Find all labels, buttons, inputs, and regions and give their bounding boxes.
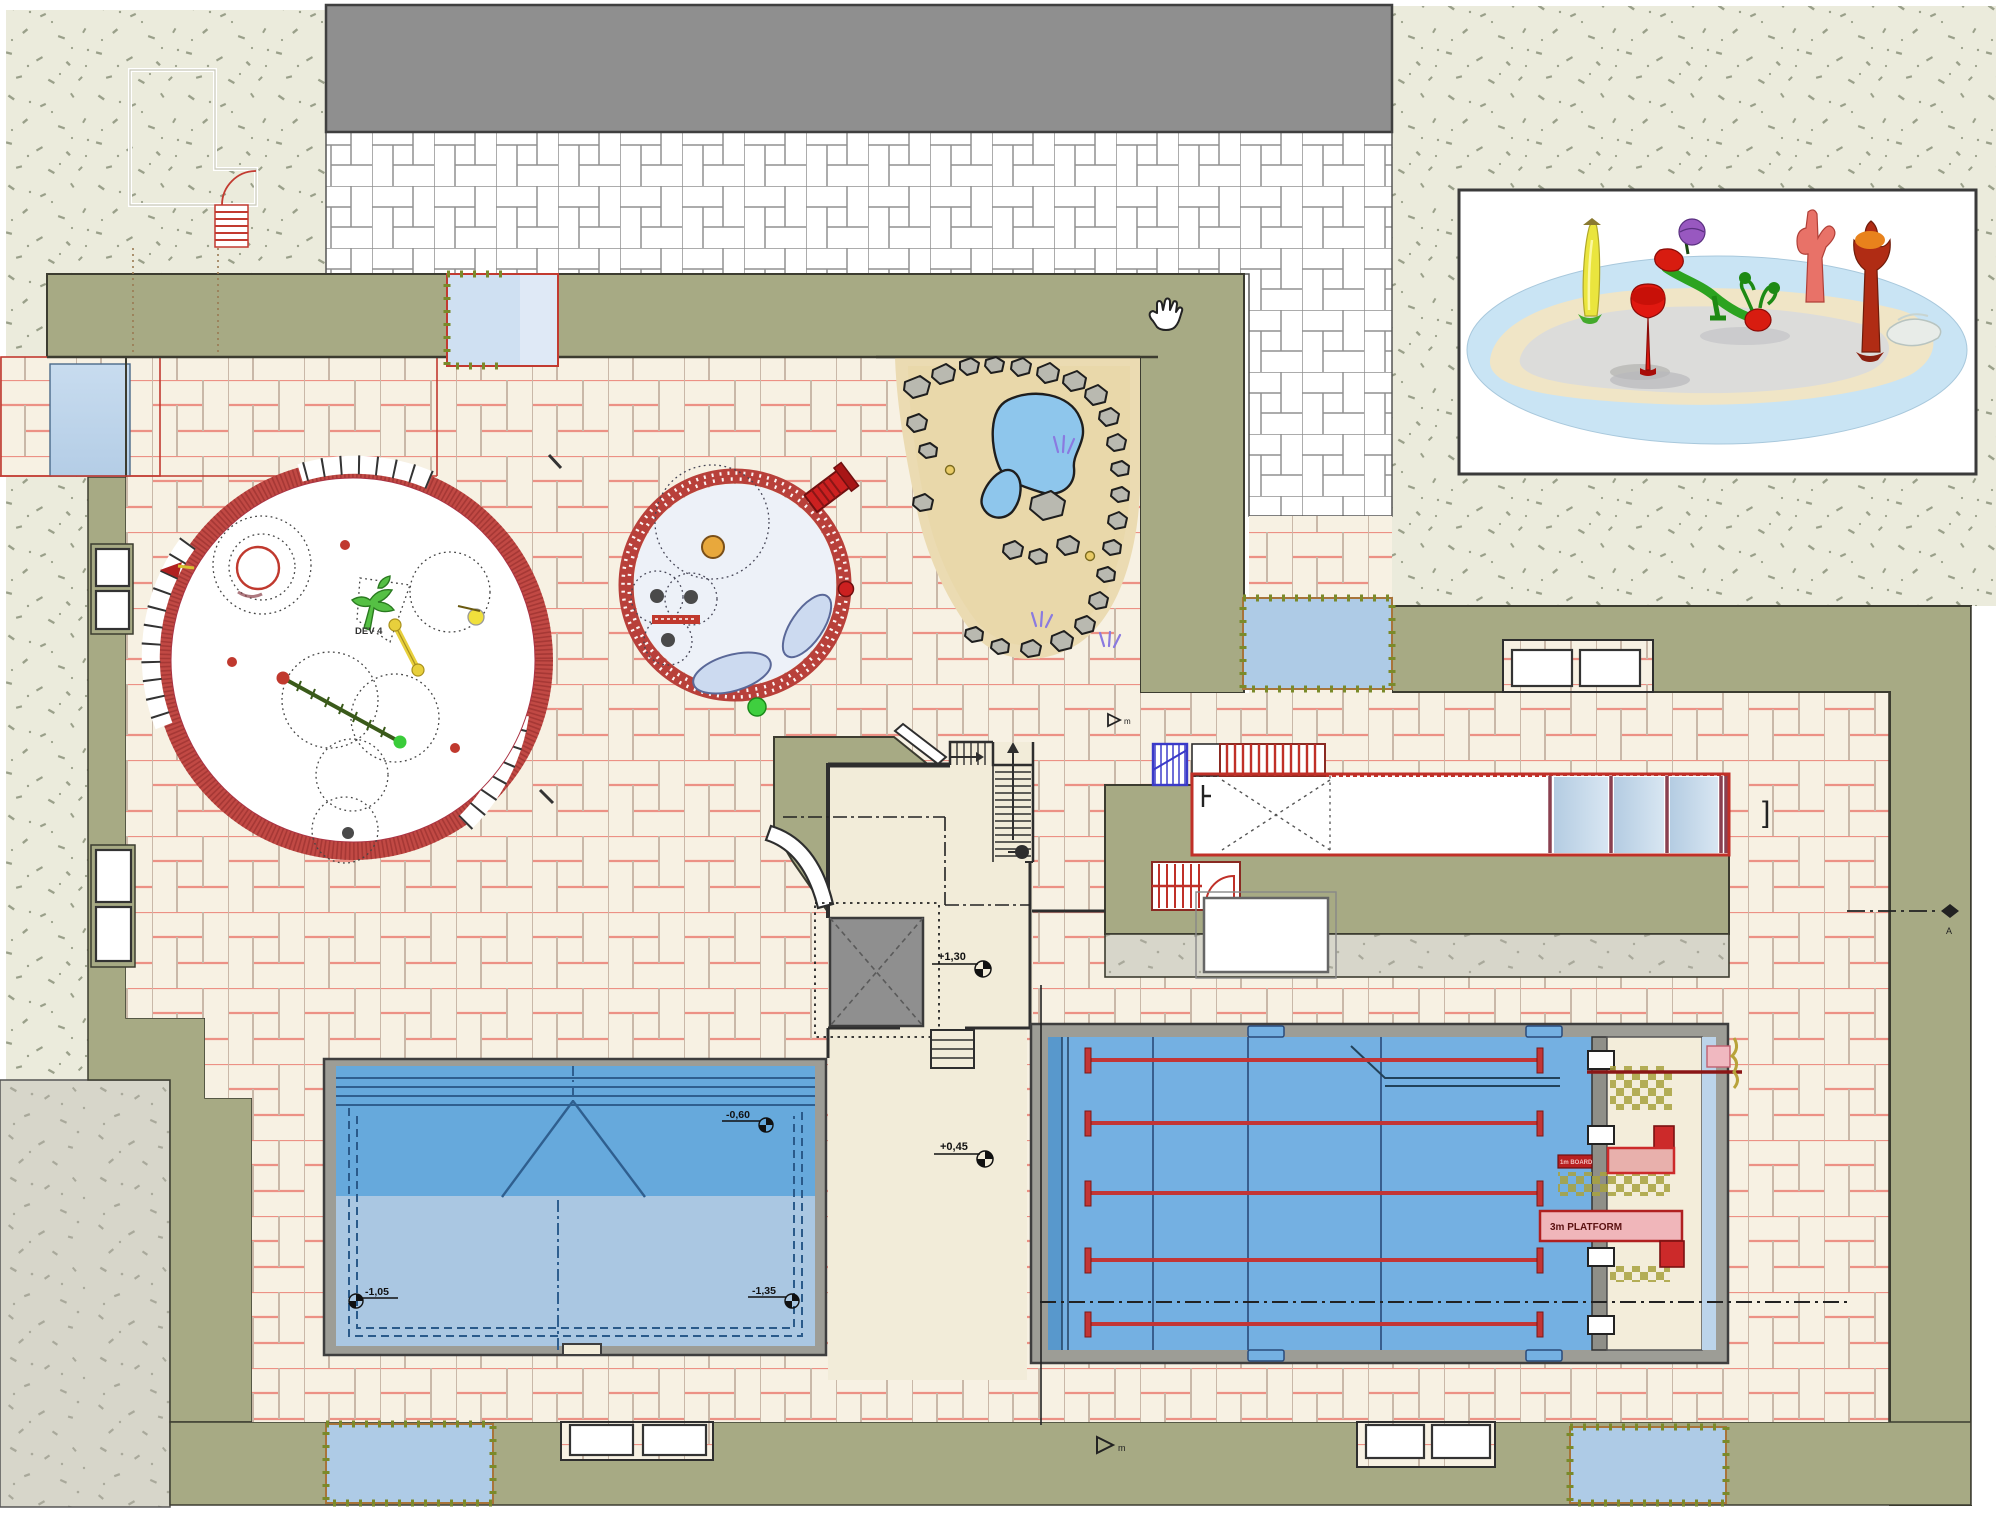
svg-text:1m BOARD: 1m BOARD xyxy=(1560,1160,1593,1166)
svg-text:A: A xyxy=(1946,926,1952,936)
svg-text:-1,35: -1,35 xyxy=(752,1285,776,1297)
svg-text:DEV 4: DEV 4 xyxy=(355,626,383,637)
svg-text:m: m xyxy=(1118,1443,1126,1453)
svg-text:+0,45: +0,45 xyxy=(940,1141,968,1153)
svg-text:-1,05: -1,05 xyxy=(365,1286,389,1298)
svg-text:]: ] xyxy=(1762,796,1770,829)
svg-text:3m PLATFORM: 3m PLATFORM xyxy=(1550,1222,1622,1233)
svg-text:+1,30: +1,30 xyxy=(938,951,966,963)
svg-text:m: m xyxy=(1124,717,1131,726)
svg-text:-0,60: -0,60 xyxy=(726,1109,750,1121)
